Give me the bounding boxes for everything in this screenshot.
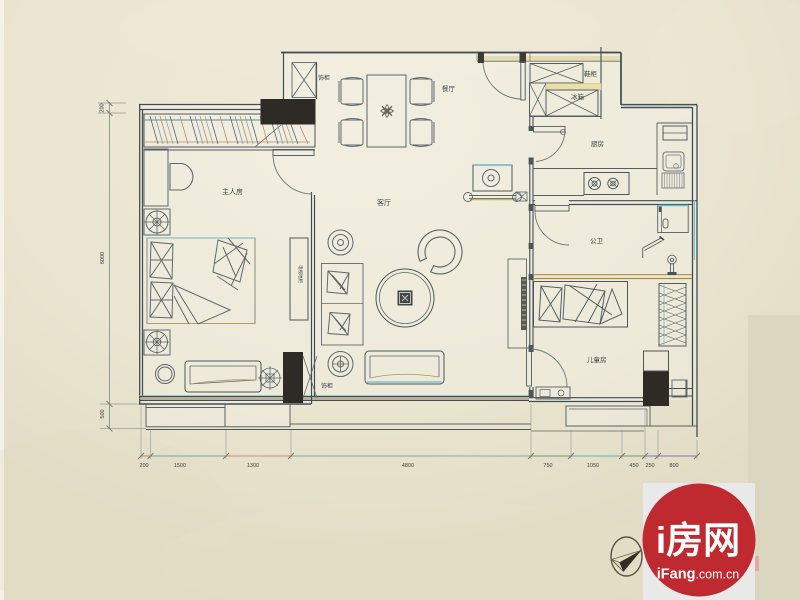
svg-text:公卫: 公卫 xyxy=(590,237,604,245)
svg-text:750: 750 xyxy=(543,463,552,469)
svg-text:6000: 6000 xyxy=(100,252,106,264)
svg-text:饰柜: 饰柜 xyxy=(318,74,330,82)
svg-text:iFang.com.cn: iFang.com.cn xyxy=(657,567,739,583)
svg-text:450: 450 xyxy=(629,463,638,469)
svg-text:饰柜: 饰柜 xyxy=(321,382,333,390)
svg-text:1050: 1050 xyxy=(587,463,599,469)
svg-text:200: 200 xyxy=(139,463,148,469)
svg-text:4800: 4800 xyxy=(402,463,414,469)
svg-text:主人房: 主人房 xyxy=(222,187,243,196)
svg-text:i房网: i房网 xyxy=(656,520,740,561)
svg-text:餐厅: 餐厅 xyxy=(442,84,456,93)
svg-text:800: 800 xyxy=(669,463,678,469)
svg-text:厨房: 厨房 xyxy=(591,139,604,148)
svg-text:1500: 1500 xyxy=(174,463,186,469)
svg-text:鞋柜: 鞋柜 xyxy=(584,69,598,78)
svg-text:客厅: 客厅 xyxy=(377,198,391,207)
svg-text:1300: 1300 xyxy=(247,463,259,469)
svg-text:冰箱: 冰箱 xyxy=(571,92,585,101)
svg-text:儿童房: 儿童房 xyxy=(587,355,607,364)
svg-text:电视地柜: 电视地柜 xyxy=(297,265,304,283)
svg-text:250: 250 xyxy=(645,463,654,469)
svg-text:500: 500 xyxy=(100,409,106,418)
svg-text:200: 200 xyxy=(100,103,106,112)
